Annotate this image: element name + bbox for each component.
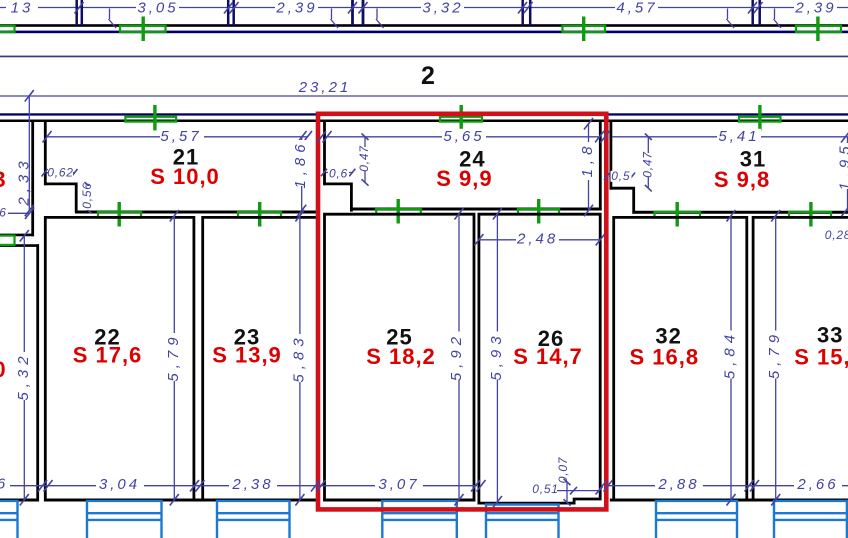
svg-text:5,57: 5,57	[160, 128, 201, 145]
svg-text:0,47: 0,47	[640, 151, 654, 178]
svg-text:S 9,9: S 9,9	[436, 166, 492, 191]
svg-text:5,84: 5,84	[722, 330, 739, 379]
svg-text:5,32: 5,32	[15, 351, 32, 400]
svg-text:0,51: 0,51	[532, 482, 559, 496]
svg-text:5,79: 5,79	[766, 330, 783, 379]
svg-text:2: 2	[421, 62, 435, 90]
svg-text:6: 6	[0, 206, 7, 220]
svg-text:2,88: 2,88	[657, 476, 699, 493]
svg-text:6: 6	[0, 476, 8, 493]
svg-text:2,33: 2,33	[16, 156, 33, 206]
svg-text:S 9,8: S 9,8	[714, 167, 770, 192]
svg-text:2,38: 2,38	[231, 476, 273, 493]
svg-text:2,39: 2,39	[794, 0, 836, 17]
svg-text:0,62: 0,62	[47, 166, 74, 180]
svg-text:3: 3	[0, 167, 7, 192]
svg-text:5,92: 5,92	[448, 332, 465, 381]
svg-text:5,93: 5,93	[488, 331, 505, 380]
svg-text:0,5: 0,5	[611, 169, 630, 183]
svg-text:3,05: 3,05	[137, 0, 178, 17]
svg-text:0,07: 0,07	[556, 456, 570, 483]
svg-text:1,86: 1,86	[292, 139, 309, 188]
svg-text:0,6: 0,6	[329, 167, 348, 181]
svg-text:2,66: 2,66	[796, 476, 838, 493]
svg-text:0,47: 0,47	[357, 145, 371, 172]
svg-text:0,28: 0,28	[825, 228, 848, 242]
svg-text:S 16,8: S 16,8	[629, 345, 699, 370]
svg-text:S 18,2: S 18,2	[366, 344, 436, 369]
svg-text:0,56: 0,56	[80, 182, 94, 209]
svg-text:5,41: 5,41	[718, 128, 759, 145]
svg-text:13: 13	[11, 0, 34, 17]
svg-text:23,21: 23,21	[298, 79, 352, 96]
svg-text:3,07: 3,07	[378, 476, 419, 493]
svg-text:2,48: 2,48	[516, 231, 558, 248]
svg-text:2,39: 2,39	[275, 0, 317, 17]
svg-text:5,83: 5,83	[290, 333, 307, 382]
svg-text:1,95: 1,95	[837, 141, 848, 190]
svg-text:S 17,6: S 17,6	[73, 343, 143, 368]
svg-text:S 14,7: S 14,7	[513, 344, 583, 369]
svg-text:3,32: 3,32	[422, 0, 463, 17]
svg-text:4,57: 4,57	[616, 0, 657, 17]
svg-text:S 13,9: S 13,9	[212, 343, 282, 368]
svg-text:S 15,9: S 15,9	[794, 345, 848, 370]
svg-text:3,04: 3,04	[99, 476, 140, 493]
svg-text:5,79: 5,79	[165, 332, 182, 381]
svg-text:S 10,0: S 10,0	[150, 164, 220, 189]
svg-text:1,8: 1,8	[579, 142, 596, 178]
svg-text:0: 0	[0, 357, 7, 382]
svg-text:5,65: 5,65	[443, 128, 484, 145]
